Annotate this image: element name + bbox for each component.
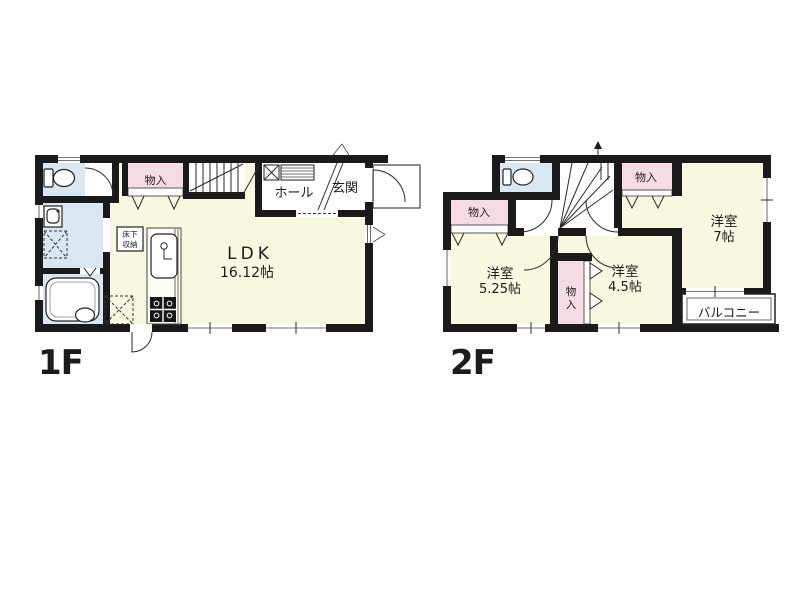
bath-stool-icon bbox=[76, 308, 95, 322]
hall-label: ホール bbox=[274, 186, 313, 201]
closet-2f-top-label: 物入 bbox=[635, 170, 657, 184]
ldk-label: LDK bbox=[227, 244, 273, 264]
bathtub-icon bbox=[46, 278, 99, 322]
closet-2f-center-label-1: 物 bbox=[566, 285, 577, 298]
shoe-cabinet-icon bbox=[281, 165, 314, 180]
western-525-size: 5.25帖 bbox=[479, 282, 521, 297]
casement-window-flap bbox=[373, 227, 385, 242]
western-7-size: 7帖 bbox=[713, 230, 734, 245]
closet-2f-center-track bbox=[584, 261, 590, 324]
closet-1f-door-track bbox=[128, 188, 183, 196]
floor2-label: 2F bbox=[450, 343, 495, 383]
underfloor-storage-label-1: 床下 bbox=[122, 229, 138, 239]
stove-icon bbox=[150, 297, 176, 322]
floorplan-canvas: 床下 収納 物入 ホール 玄関 LDK 16.12帖 1F bbox=[0, 0, 800, 600]
entrance-label: 玄関 bbox=[332, 181, 358, 196]
toilet-icon-2f bbox=[503, 169, 533, 185]
balcony-label: バルコニー bbox=[698, 305, 760, 320]
floorplan-page: 床下 収納 物入 ホール 玄関 LDK 16.12帖 1F bbox=[0, 0, 800, 600]
closet-2f-left-track bbox=[451, 225, 508, 233]
floorplan-2f: バルコニー bbox=[443, 141, 779, 383]
top-window-flap bbox=[333, 144, 349, 155]
closet-2f-center-label-2: 入 bbox=[566, 299, 577, 311]
ldk-size-label: 16.12帖 bbox=[220, 265, 274, 281]
toilet-icon-1f bbox=[44, 169, 75, 187]
underfloor-storage-label-2: 収納 bbox=[122, 239, 137, 249]
western-525-label: 洋室 bbox=[487, 265, 514, 282]
entrance-porch bbox=[373, 165, 420, 208]
western-7-label: 洋室 bbox=[711, 213, 738, 230]
closet-1f-label: 物入 bbox=[145, 173, 167, 187]
washstand-icon bbox=[44, 206, 62, 227]
underfloor-storage-box: 床下 収納 bbox=[117, 227, 143, 251]
closet-2f-top-track bbox=[622, 190, 672, 196]
closet-2f-left-label: 物入 bbox=[468, 205, 490, 219]
western-45-label: 洋室 bbox=[612, 263, 639, 280]
kitchen-back-door bbox=[130, 324, 152, 352]
floorplan-1f: 床下 収納 物入 ホール 玄関 LDK 16.12帖 1F bbox=[35, 144, 420, 383]
floor1-label: 1F bbox=[38, 343, 83, 383]
western-45-size: 4.5帖 bbox=[608, 280, 642, 295]
kitchen-counter bbox=[147, 228, 181, 324]
